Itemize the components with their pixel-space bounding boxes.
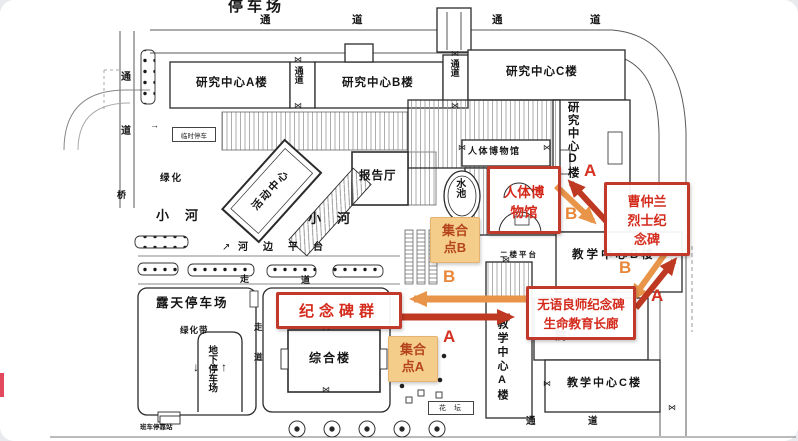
wuyu-corridor-annotation-box: 无语良师纪念碑 生命教育长廊	[526, 286, 636, 340]
route-marker-a: A	[443, 328, 455, 345]
route-marker-a: A	[651, 287, 663, 304]
monument-group-annotation-box: 纪念碑群	[276, 292, 402, 329]
assembly-point-b-box: 集合 点B	[430, 217, 480, 263]
route-marker-b: B	[619, 259, 631, 276]
page-edge-red-sliver	[0, 373, 4, 397]
campus-map-screenshot: 停车场 通 道 通 道 研究中心A楼 通道 研究中心B楼 通道 研究中心C楼 研…	[0, 0, 798, 441]
route-marker-b: B	[565, 205, 577, 222]
route-marker-a: A	[584, 162, 596, 179]
assembly-point-a-box: 集合 点A	[388, 336, 438, 382]
museum-annotation-box: 人体博 物馆	[487, 166, 561, 234]
route-marker-b: B	[443, 268, 455, 285]
cao-memorial-annotation-box: 曹仲兰 烈士纪 念碑	[604, 182, 690, 256]
